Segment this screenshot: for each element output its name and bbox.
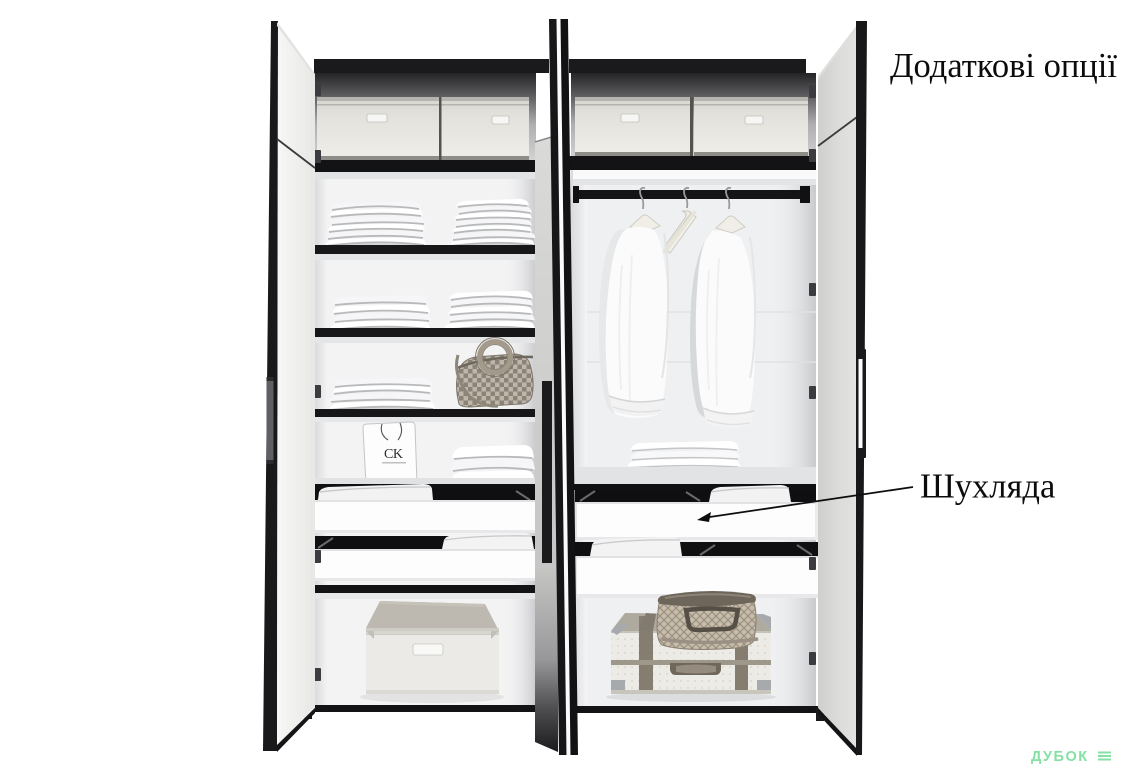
svg-text:ДУБОК: ДУБОК — [1031, 749, 1089, 765]
svg-text:Шухляда: Шухляда — [920, 468, 1055, 506]
svg-text:Додаткові опції: Додаткові опції — [890, 47, 1117, 85]
svg-text:CK: CK — [384, 447, 403, 462]
